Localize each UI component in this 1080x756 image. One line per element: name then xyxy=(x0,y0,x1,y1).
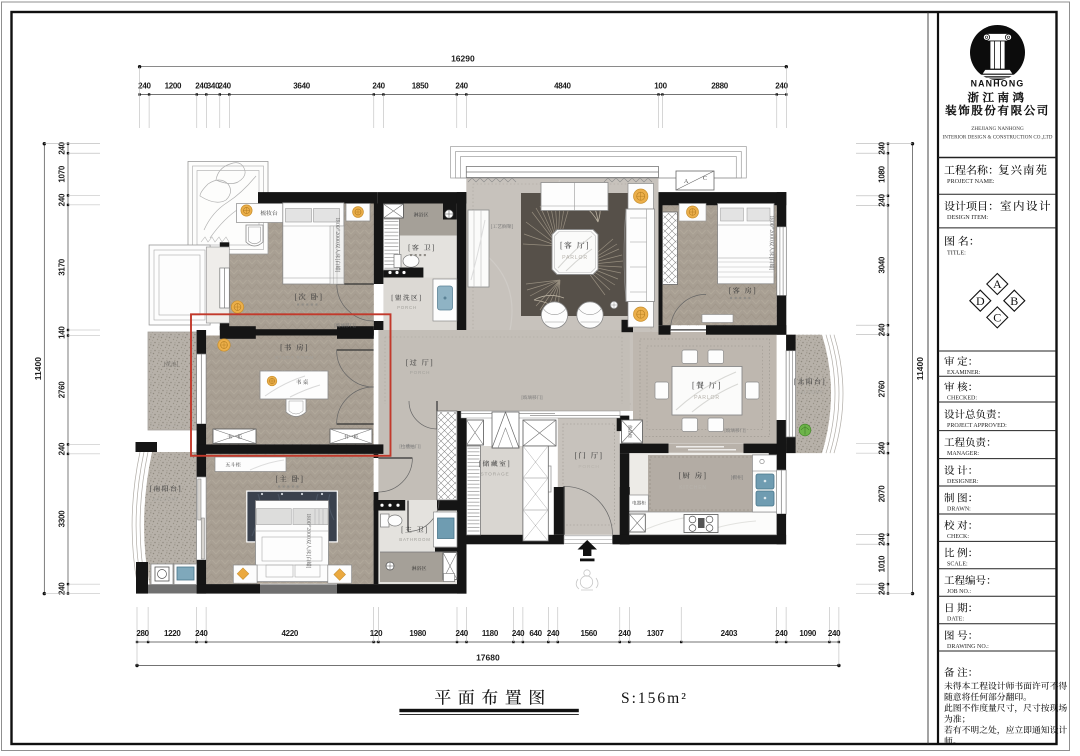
svg-text:KITCHEN: KITCHEN xyxy=(679,485,707,491)
svg-text:日 期：: 日 期： xyxy=(944,601,978,616)
svg-text:图 号：: 图 号： xyxy=(944,628,978,643)
svg-text:240: 240 xyxy=(878,441,887,454)
svg-text:[厨 房]: [厨 房] xyxy=(678,470,707,481)
svg-text:STUDY ROOM: STUDY ROOM xyxy=(275,355,314,360)
svg-text:1980: 1980 xyxy=(409,629,426,638)
svg-text:3300: 3300 xyxy=(58,510,67,527)
svg-text:PORCH: PORCH xyxy=(578,464,599,470)
svg-text:240: 240 xyxy=(547,629,560,638)
svg-text:CHECK:: CHECK: xyxy=(947,534,969,540)
svg-text:装饰股份有限公司: 装饰股份有限公司 xyxy=(945,103,1050,119)
svg-text:240: 240 xyxy=(218,82,231,91)
svg-text:140: 140 xyxy=(58,326,67,339)
svg-text:DRAWN:: DRAWN: xyxy=(947,507,971,513)
svg-text:4840: 4840 xyxy=(554,82,571,91)
svg-text:NANHONG: NANHONG xyxy=(971,79,1025,89)
svg-text:3040: 3040 xyxy=(878,256,887,273)
svg-text:淋浴区: 淋浴区 xyxy=(411,565,426,572)
svg-text:1070: 1070 xyxy=(58,165,67,182)
svg-text:五斗柜: 五斗柜 xyxy=(225,462,241,469)
svg-text:[花池]: [花池] xyxy=(164,360,179,368)
svg-text:4220: 4220 xyxy=(281,629,298,638)
svg-text:280: 280 xyxy=(136,629,149,638)
svg-text:[玻璃移门]: [玻璃移门] xyxy=(334,323,356,329)
svg-text:240: 240 xyxy=(878,193,887,206)
svg-text:PROJECT NAME:: PROJECT NAME: xyxy=(947,178,995,185)
svg-text:3640: 3640 xyxy=(293,82,310,91)
svg-text:MANAGER:: MANAGER: xyxy=(947,451,979,457)
svg-text:PORCH: PORCH xyxy=(397,305,417,310)
svg-text:[工艺搁架]: [工艺搁架] xyxy=(491,223,514,230)
svg-text:2760: 2760 xyxy=(878,380,887,397)
svg-text:240: 240 xyxy=(878,532,887,545)
svg-text:[玻璃移门]: [玻璃移门] xyxy=(521,395,543,401)
svg-text:[客 卫]: [客 卫] xyxy=(408,243,436,253)
svg-text:11400: 11400 xyxy=(33,357,43,380)
svg-text:100: 100 xyxy=(654,82,667,91)
svg-text:120: 120 xyxy=(370,629,383,638)
svg-text:2070: 2070 xyxy=(878,485,887,502)
svg-text:240: 240 xyxy=(372,82,385,91)
svg-text:BATHROOM: BATHROOM xyxy=(399,537,430,542)
svg-text:SCALE:: SCALE: xyxy=(947,562,968,568)
svg-text:D: D xyxy=(976,294,985,308)
svg-text:工程名称：: 工程名称： xyxy=(944,162,999,178)
svg-text:240: 240 xyxy=(878,141,887,154)
svg-text:1560: 1560 xyxy=(580,629,597,638)
svg-text:[北阳台]: [北阳台] xyxy=(794,376,827,386)
svg-text:师。: 师。 xyxy=(944,734,962,747)
svg-text:2403: 2403 xyxy=(721,629,738,638)
svg-text:1800*2000双人床[白蜡]: 1800*2000双人床[白蜡] xyxy=(768,215,775,270)
svg-text:设计总负责：: 设计总负责： xyxy=(944,407,1007,422)
svg-text:240: 240 xyxy=(58,582,67,595)
svg-text:640: 640 xyxy=(529,629,542,638)
svg-text:审 核：: 审 核： xyxy=(944,380,978,395)
svg-text:STORAGE: STORAGE xyxy=(481,472,510,478)
svg-text:备 注：: 备 注： xyxy=(944,665,978,680)
svg-text:1010: 1010 xyxy=(878,555,887,572)
svg-text:食品柜: 食品柜 xyxy=(627,425,633,439)
svg-text:ZHEJIANG NANHONG: ZHEJIANG NANHONG xyxy=(971,126,1024,132)
svg-text:PARLOR: PARLOR xyxy=(562,255,588,261)
svg-text:图 名：: 图 名： xyxy=(944,233,980,249)
svg-text:审 定：: 审 定： xyxy=(944,354,978,369)
svg-text:[盥洗区]: [盥洗区] xyxy=(391,292,423,302)
svg-text:3170: 3170 xyxy=(58,258,67,275)
svg-text:[客 厅]: [客 厅] xyxy=(560,240,591,251)
svg-text:240: 240 xyxy=(58,141,67,154)
svg-text:240: 240 xyxy=(512,629,525,638)
svg-text:BALCONY: BALCONY xyxy=(153,497,180,502)
svg-text:校 对：: 校 对： xyxy=(944,518,978,533)
svg-text:书 桌: 书 桌 xyxy=(296,378,309,386)
svg-text:EXAMINER:: EXAMINER: xyxy=(947,370,981,376)
svg-text:A: A xyxy=(684,179,689,185)
svg-text:[储藏室]: [储藏室] xyxy=(479,458,512,468)
svg-text:BALCONY: BALCONY xyxy=(797,390,824,395)
svg-text:240: 240 xyxy=(878,323,887,336)
svg-text:PROJECT APPROVED:: PROJECT APPROVED: xyxy=(947,423,1007,429)
svg-text:240: 240 xyxy=(878,582,887,595)
svg-text:[客 房]: [客 房] xyxy=(729,286,758,296)
svg-text:制 图：: 制 图： xyxy=(944,491,978,506)
svg-text:PORCH: PORCH xyxy=(410,370,431,375)
svg-text:室内设计: 室内设计 xyxy=(1000,198,1052,214)
svg-text:[主 卧]: [主 卧] xyxy=(275,474,304,485)
svg-text:TITLE:: TITLE: xyxy=(947,250,966,257)
svg-text:复兴南苑: 复兴南苑 xyxy=(998,162,1048,178)
svg-text:1090: 1090 xyxy=(799,629,816,638)
svg-text:DATE:: DATE: xyxy=(947,617,964,623)
svg-text:平面布置图: 平面布置图 xyxy=(434,684,552,709)
svg-text:设 计：: 设 计： xyxy=(944,463,978,478)
svg-text:DESIGNER:: DESIGNER: xyxy=(947,479,979,485)
svg-text:240: 240 xyxy=(455,629,468,638)
svg-text:设计项目：: 设计项目： xyxy=(944,198,999,214)
svg-text:2760: 2760 xyxy=(58,381,67,398)
svg-text:DRAWING NO.:: DRAWING NO.: xyxy=(947,644,989,650)
svg-text:CHECKED:: CHECKED: xyxy=(947,396,977,402)
svg-text:[拉槽抽门]: [拉槽抽门] xyxy=(399,443,421,450)
svg-text:240: 240 xyxy=(195,629,208,638)
svg-text:1180: 1180 xyxy=(482,629,499,638)
svg-text:S:156m²: S:156m² xyxy=(621,690,688,707)
svg-text:[南阳台]: [南阳台] xyxy=(150,483,183,493)
svg-text:[餐 厅]: [餐 厅] xyxy=(692,380,723,391)
svg-text:240: 240 xyxy=(618,629,631,638)
svg-text:书一柜: 书一柜 xyxy=(343,434,358,441)
svg-text:[橱柜]: [橱柜] xyxy=(731,474,744,481)
svg-text:16290: 16290 xyxy=(451,54,475,64)
svg-text:DESIGN ITEM:: DESIGN ITEM: xyxy=(947,214,988,221)
svg-text:PARLOR: PARLOR xyxy=(694,395,720,401)
svg-text:[过 厅]: [过 厅] xyxy=(406,358,435,368)
svg-text:1080: 1080 xyxy=(878,165,887,182)
svg-text:240: 240 xyxy=(775,629,788,638)
svg-text:11400: 11400 xyxy=(915,357,925,380)
svg-text:电器柜: 电器柜 xyxy=(632,501,646,507)
svg-text:B: B xyxy=(1010,294,1018,308)
svg-text:工程负责：: 工程负责： xyxy=(944,435,997,450)
svg-text:1307: 1307 xyxy=(647,629,664,638)
svg-text:[玻璃移门]: [玻璃移门] xyxy=(724,428,746,434)
svg-text:JOB NO.:: JOB NO.: xyxy=(947,589,971,595)
svg-text:2880: 2880 xyxy=(711,82,728,91)
svg-text:A: A xyxy=(993,277,1002,291)
svg-text:[书 房]: [书 房] xyxy=(280,342,309,353)
svg-text:1800*2000双人床[白蜡]: 1800*2000双人床[白蜡] xyxy=(305,513,312,568)
svg-text:1850: 1850 xyxy=(412,82,429,91)
svg-text:C: C xyxy=(703,176,707,182)
svg-text:C: C xyxy=(993,311,1001,325)
svg-text:书一柜: 书一柜 xyxy=(227,434,242,441)
svg-text:1200: 1200 xyxy=(165,82,182,91)
svg-text:17680: 17680 xyxy=(476,653,500,663)
svg-text:240: 240 xyxy=(775,82,788,91)
svg-text:240: 240 xyxy=(455,82,468,91)
svg-text:240: 240 xyxy=(828,629,841,638)
svg-text:240: 240 xyxy=(138,82,151,91)
svg-text:比 例：: 比 例： xyxy=(944,546,978,561)
svg-text:240: 240 xyxy=(58,442,67,455)
svg-text:1220: 1220 xyxy=(164,629,181,638)
svg-text:淋浴区: 淋浴区 xyxy=(413,212,428,219)
svg-text:工程编号：: 工程编号： xyxy=(944,573,997,588)
svg-text:梳妆台: 梳妆台 xyxy=(260,208,278,217)
svg-text:[次 卧]: [次 卧] xyxy=(294,292,323,303)
svg-text:INTERIOR DESIGN & CONSTRUCTION: INTERIOR DESIGN & CONSTRUCTION CO.,LTD xyxy=(943,135,1053,141)
svg-text:1800*2000双人床[白蜡]: 1800*2000双人床[白蜡] xyxy=(334,217,341,272)
svg-text:若有不明之处，应立即通知设计: 若有不明之处，应立即通知设计 xyxy=(944,723,1067,736)
svg-text:[主 卫]: [主 卫] xyxy=(401,525,429,535)
svg-text:240: 240 xyxy=(58,193,67,206)
svg-text:[门 厅]: [门 厅] xyxy=(574,450,603,461)
